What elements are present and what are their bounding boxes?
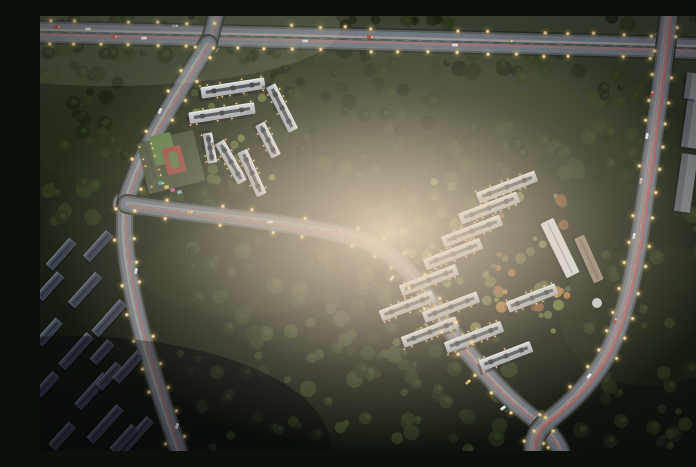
render-canvas <box>40 16 696 451</box>
aerial-masterplan-rendering <box>40 16 696 451</box>
